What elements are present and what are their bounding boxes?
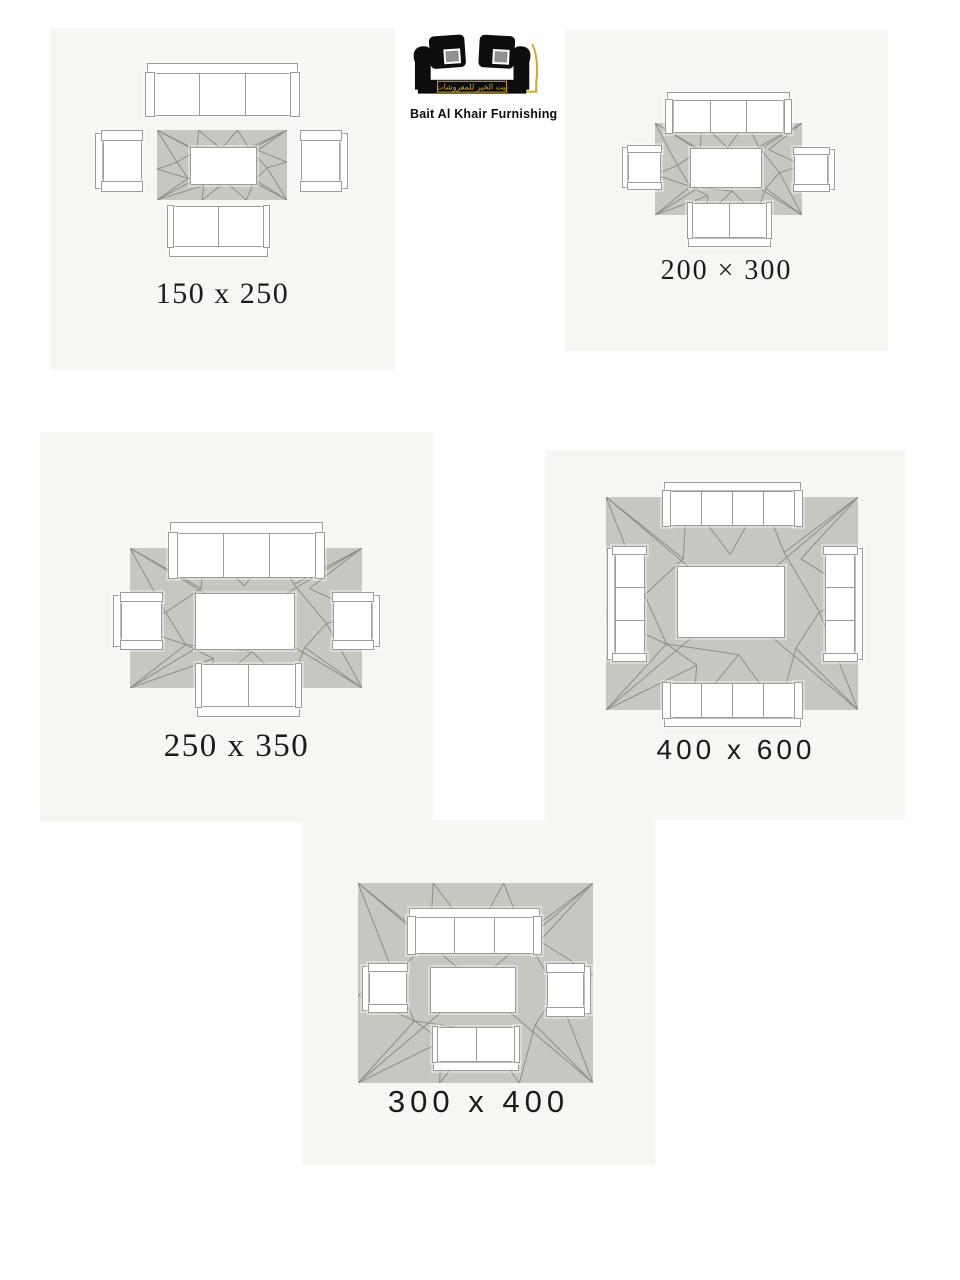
rug-size-card-150x250: 150 x 250 (50, 28, 395, 370)
logo-english-text: Bait Al Khair Furnishing (410, 107, 548, 121)
rug-size-card-200x300: 200 × 300 (565, 30, 888, 351)
two-seat-loveseat (432, 1026, 520, 1071)
size-label: 300 x 400 (302, 1086, 655, 1119)
size-label: 250 x 350 (40, 729, 433, 764)
coffee-table (677, 566, 785, 638)
sofa-logo-icon: بيت الخير للمفروشات (410, 28, 548, 106)
two-seat-loveseat (687, 202, 772, 247)
armchair-left (113, 592, 163, 650)
rug-size-card-400x600: 400 x 600 (545, 450, 905, 820)
coffee-table (190, 147, 257, 185)
armchair-left (95, 130, 143, 192)
right-pillow-icon (478, 35, 515, 69)
three-seat-sofa (168, 522, 325, 579)
brand-logo: بيت الخير للمفروشات Bait Al Khair Furnis… (410, 28, 548, 121)
coffee-table (430, 967, 516, 1013)
left-pillow-icon (429, 34, 467, 69)
two-seat-loveseat (195, 663, 302, 717)
armchair-right (300, 130, 348, 192)
logo-arabic-text: بيت الخير للمفروشات (436, 82, 508, 91)
size-label: 150 x 250 (50, 278, 395, 310)
size-label: 400 x 600 (556, 735, 916, 764)
armchair-left (362, 963, 408, 1013)
three-seat-sofa (145, 63, 300, 117)
armchair-left (622, 145, 662, 190)
size-label: 200 × 300 (565, 256, 888, 285)
rug-size-card-300x400: 300 x 400 (302, 820, 655, 1165)
three-seat-sofa-left (607, 546, 647, 662)
armchair-right (332, 592, 380, 650)
three-seat-sofa-right (823, 546, 863, 662)
four-seat-sofa-top (662, 482, 803, 527)
rug-size-guide-page: { "brand": { "arabic_text": "بيت الخير ل… (0, 0, 960, 1280)
coffee-table (690, 148, 762, 188)
four-seat-sofa-bottom (662, 682, 803, 727)
armchair-right (793, 147, 835, 192)
coffee-table (195, 593, 295, 650)
two-seat-loveseat (167, 205, 270, 257)
three-seat-sofa (407, 908, 542, 955)
armchair-right (546, 963, 591, 1017)
three-seat-sofa (665, 92, 792, 134)
rug-size-card-250x350: 250 x 350 (40, 432, 433, 822)
